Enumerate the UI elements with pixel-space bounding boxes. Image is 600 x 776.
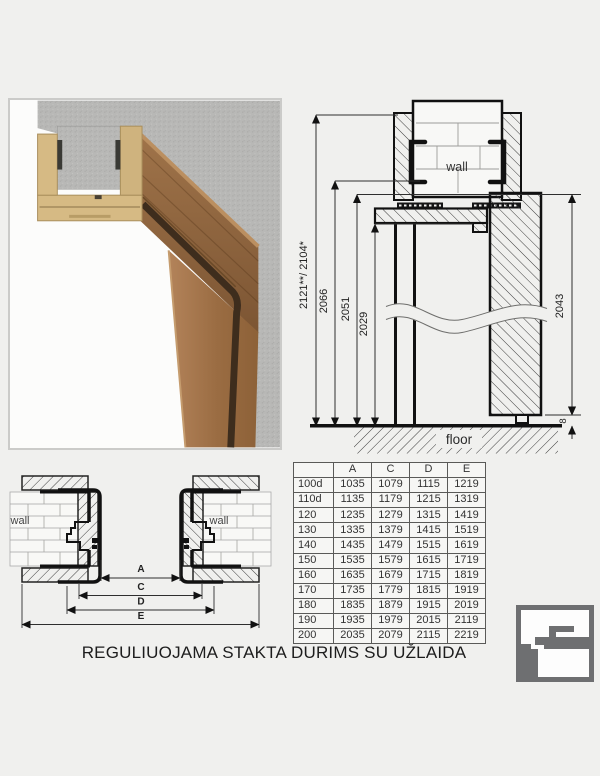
svg-text:8: 8: [558, 418, 569, 423]
plan-section-diagram: wall wall A C D: [0, 460, 292, 640]
table-row: 1801835187919152019: [294, 598, 486, 613]
table-row: 2002035207921152219: [294, 629, 486, 644]
dimension-2029: 2029: [358, 224, 375, 426]
dimension-value-cell: 2119: [448, 613, 486, 628]
dimension-value-cell: 1179: [372, 493, 410, 508]
door-frame-profile-icon: [516, 605, 594, 682]
table-row: 1501535157916151719: [294, 553, 486, 568]
size-label-cell: 170: [294, 583, 334, 598]
size-label-cell: 200: [294, 629, 334, 644]
size-label-cell: 120: [294, 508, 334, 523]
wall-right-label: wall: [209, 515, 229, 527]
size-label-cell: 100d: [294, 478, 334, 493]
dimension-value-cell: 1279: [372, 508, 410, 523]
page-title: REGULIUOJAMA STAKTA DURIMS SU UŽLAIDA: [0, 643, 548, 663]
dimension-value-cell: 1579: [372, 553, 410, 568]
table-header-C: C: [372, 463, 410, 478]
door-leaf-section: [490, 193, 541, 415]
dimension-value-cell: 2015: [410, 613, 448, 628]
dimension-value-cell: 1435: [334, 538, 372, 553]
dimension-value-cell: 2035: [334, 629, 372, 644]
size-table: ACDE 100d1035107911151219110d11351179121…: [293, 462, 486, 644]
dimension-value-cell: 1235: [334, 508, 372, 523]
dimension-value-cell: 1479: [372, 538, 410, 553]
svg-text:E: E: [138, 611, 145, 622]
dimension-value-cell: 1619: [448, 538, 486, 553]
size-label-cell: 130: [294, 523, 334, 538]
dimension-value-cell: 1215: [410, 493, 448, 508]
dimension-value-cell: 1515: [410, 538, 448, 553]
dimension-value-cell: 1935: [334, 613, 372, 628]
table-row: 1401435147915151619: [294, 538, 486, 553]
dimension-2043: 2043: [554, 195, 572, 416]
dimension-value-cell: 1135: [334, 493, 372, 508]
svg-text:2066: 2066: [318, 289, 330, 313]
svg-text:2121**/ 2104*: 2121**/ 2104*: [298, 240, 310, 309]
floor: floor: [310, 424, 562, 454]
svg-text:2051: 2051: [340, 297, 352, 321]
size-label-cell: 180: [294, 598, 334, 613]
plan-right-jamb: [181, 476, 271, 582]
dimension-value-cell: 1079: [372, 478, 410, 493]
gasket-detail: [92, 538, 100, 543]
size-label-cell: 190: [294, 613, 334, 628]
dimension-2066: 2066: [318, 181, 335, 426]
table-row: 110d1135117912151319: [294, 493, 486, 508]
table-row: 1701735177918151919: [294, 583, 486, 598]
dimension-value-cell: 1419: [448, 508, 486, 523]
dimension-c: C: [79, 582, 202, 596]
wall-left-label: wall: [10, 515, 30, 527]
dimension-value-cell: 1319: [448, 493, 486, 508]
dimension-value-cell: 1335: [334, 523, 372, 538]
dimension-value-cell: 1715: [410, 568, 448, 583]
dimension-total: 2121**/ 2104*: [298, 115, 316, 426]
table-header-A: A: [334, 463, 372, 478]
dimension-value-cell: 1719: [448, 553, 486, 568]
door-leaf-foot: [516, 415, 528, 423]
dimension-value-cell: 1115: [410, 478, 448, 493]
table-header-E: E: [448, 463, 486, 478]
svg-text:C: C: [137, 582, 144, 593]
dimension-value-cell: 1519: [448, 523, 486, 538]
table-row: 1301335137914151519: [294, 523, 486, 538]
dimension-value-cell: 2219: [448, 629, 486, 644]
dimension-value-cell: 2115: [410, 629, 448, 644]
floor-label: floor: [446, 432, 473, 447]
size-label-cell: 160: [294, 568, 334, 583]
dimension-value-cell: 1835: [334, 598, 372, 613]
svg-text:D: D: [137, 597, 144, 608]
vertical-section-diagram: wall: [290, 85, 600, 465]
dimension-e: E: [22, 611, 259, 625]
spec-sheet-page: wall: [0, 0, 600, 776]
dimension-value-cell: 1819: [448, 568, 486, 583]
dimension-value-cell: 1915: [410, 598, 448, 613]
dimension-value-cell: 2019: [448, 598, 486, 613]
size-label-cell: 150: [294, 553, 334, 568]
table-row: 1201235127913151419: [294, 508, 486, 523]
svg-text:A: A: [137, 564, 144, 575]
table-row: 1601635167917151819: [294, 568, 486, 583]
dimension-value-cell: 1035: [334, 478, 372, 493]
dimension-value-cell: 1315: [410, 508, 448, 523]
dimension-value-cell: 1679: [372, 568, 410, 583]
plan-left-jamb: [10, 476, 100, 582]
cut-face-section: [38, 126, 142, 221]
dimension-value-cell: 1815: [410, 583, 448, 598]
dimension-value-cell: 1879: [372, 598, 410, 613]
table-header-D: D: [410, 463, 448, 478]
svg-text:2043: 2043: [554, 294, 566, 318]
size-label-cell: 140: [294, 538, 334, 553]
dimension-value-cell: 1735: [334, 583, 372, 598]
dimension-value-cell: 1535: [334, 553, 372, 568]
table-row: 1901935197920152119: [294, 613, 486, 628]
dimension-value-cell: 1219: [448, 478, 486, 493]
dimension-value-cell: 2079: [372, 629, 410, 644]
size-table-container: ACDE 100d1035107911151219110d11351179121…: [293, 462, 486, 644]
dimension-value-cell: 1779: [372, 583, 410, 598]
product-photo: [8, 98, 282, 450]
plan-section-svg: wall wall A C D: [0, 460, 292, 640]
size-label-cell: 110d: [294, 493, 334, 508]
door-frame-corner-render: [10, 100, 280, 448]
dimension-value-cell: 1615: [410, 553, 448, 568]
dimension-value-cell: 1379: [372, 523, 410, 538]
wall-label: wall: [445, 160, 468, 174]
vertical-section-svg: wall: [290, 85, 600, 465]
table-header-size: [294, 463, 334, 478]
dimension-2051: 2051: [340, 195, 357, 427]
dimension-value-cell: 1919: [448, 583, 486, 598]
dimension-value-cell: 1635: [334, 568, 372, 583]
brand-logo: [516, 605, 594, 682]
svg-text:2029: 2029: [358, 312, 370, 336]
dimension-d: D: [67, 597, 214, 611]
dimension-a: A: [101, 564, 180, 578]
dimension-value-cell: 1415: [410, 523, 448, 538]
dimension-floor-gap: 8: [558, 402, 572, 439]
table-row: 100d1035107911151219: [294, 478, 486, 493]
dimension-value-cell: 1979: [372, 613, 410, 628]
